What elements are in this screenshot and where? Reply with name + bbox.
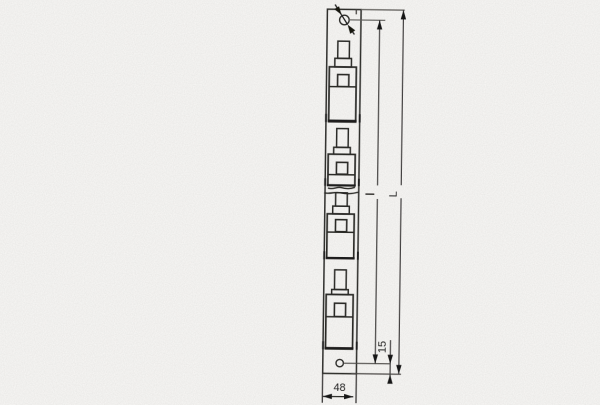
svg-text:15: 15 bbox=[377, 341, 389, 353]
svg-text:48: 48 bbox=[333, 382, 345, 394]
svg-text:L: L bbox=[387, 191, 399, 197]
